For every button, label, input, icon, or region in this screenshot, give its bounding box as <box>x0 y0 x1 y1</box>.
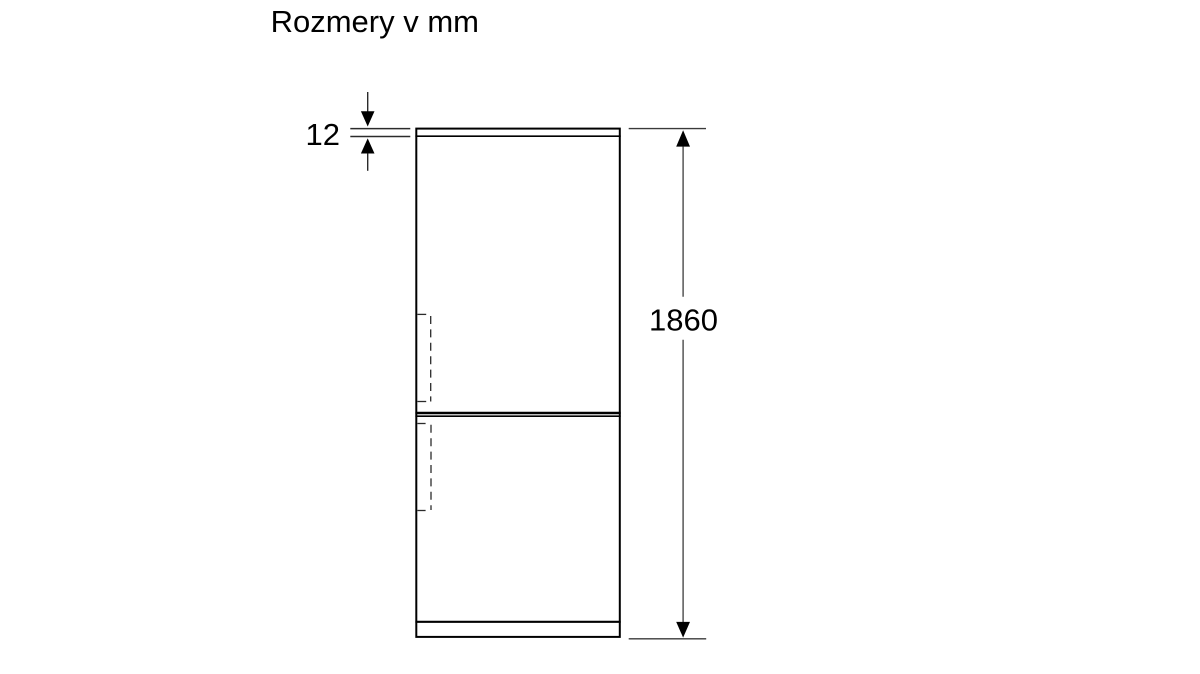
svg-text:Rozmery v mm: Rozmery v mm <box>271 4 479 39</box>
svg-text:12: 12 <box>306 117 340 152</box>
svg-text:1860: 1860 <box>649 302 718 337</box>
